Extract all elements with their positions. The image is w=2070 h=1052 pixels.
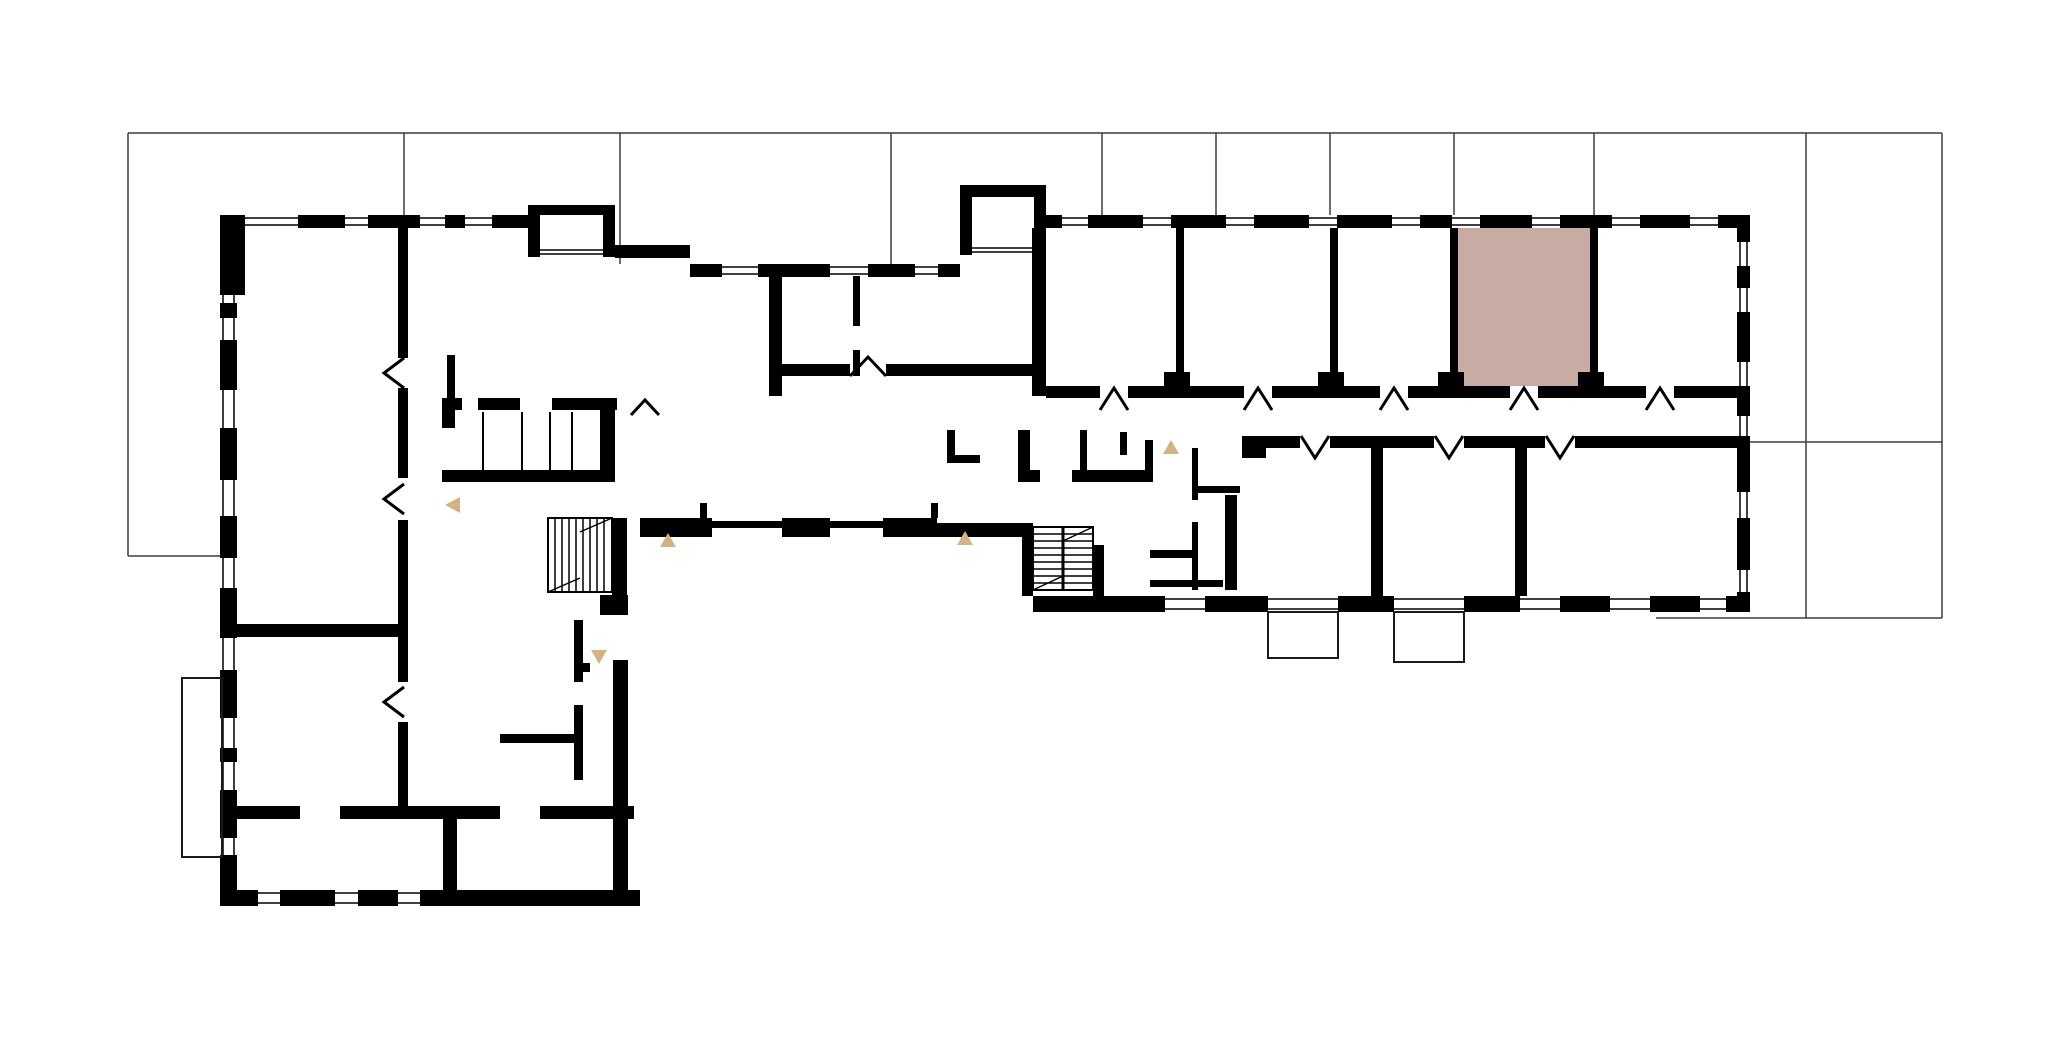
exterior-wall-segment: [1737, 312, 1750, 362]
exterior-wall-segment: [1726, 596, 1750, 612]
wall-segment: [1438, 372, 1464, 386]
wall-segment: [1120, 432, 1127, 455]
exterior-wall-segment: [445, 215, 465, 228]
wall-segment: [574, 620, 583, 682]
balcony-outline: [1394, 612, 1464, 662]
wall-segment: [615, 245, 690, 258]
exterior-wall-segment: [358, 890, 398, 906]
exterior-wall-segment: [938, 264, 960, 277]
door-chevron: [384, 358, 404, 388]
wall-segment: [398, 228, 408, 358]
exterior-wall-segment: [1171, 215, 1226, 228]
wall-segment: [442, 470, 615, 482]
wall-segment: [237, 806, 300, 819]
wall-segment: [237, 624, 404, 637]
selected-unit[interactable]: [1458, 228, 1590, 386]
exterior-wall-segment: [1337, 215, 1392, 228]
wall-segment: [442, 398, 455, 428]
wall-segment: [478, 398, 520, 410]
floor-plan-canvas: [0, 0, 2070, 1052]
door-chevron: [631, 400, 659, 415]
wall-segment: [886, 364, 1032, 376]
wall-segment: [220, 228, 245, 295]
wall-segment: [1034, 185, 1046, 228]
wall-segment: [500, 734, 574, 743]
door-chevron: [1380, 388, 1408, 410]
wall-segment: [528, 205, 615, 215]
door-chevron: [1510, 388, 1538, 410]
wall-segment: [1242, 436, 1266, 458]
wall-segment: [1080, 430, 1087, 470]
wall-segment: [1674, 386, 1750, 398]
floor-plan-page: [0, 0, 2070, 1052]
wall-segment: [340, 806, 500, 819]
wall-segment: [1164, 372, 1190, 386]
exterior-wall-segment: [1254, 215, 1309, 228]
wall-segment: [1128, 386, 1244, 398]
wall-segment: [1371, 443, 1383, 596]
wall-segment: [612, 518, 627, 595]
wall-segment: [398, 722, 408, 812]
wall-segment: [769, 264, 782, 396]
wall-segment: [947, 455, 980, 463]
exterior-wall-segment: [1420, 215, 1452, 228]
wall-segment: [1538, 386, 1646, 398]
wall-segment: [447, 355, 455, 400]
wall-segment: [960, 185, 1046, 197]
wall-segment: [1093, 545, 1104, 596]
wall-segment: [1192, 486, 1240, 493]
exterior-wall-segment: [220, 855, 237, 890]
exterior-wall-segment: [1033, 596, 1165, 612]
wall-segment: [1046, 386, 1100, 398]
wall-segment: [443, 818, 457, 890]
exterior-wall-segment: [280, 890, 335, 906]
wall-segment: [1578, 372, 1604, 386]
wall-segment: [931, 503, 938, 518]
exterior-wall-segment: [220, 890, 258, 906]
wall-segment: [1318, 372, 1344, 386]
wall-segment: [830, 521, 883, 528]
wall-segment: [782, 518, 813, 537]
exterior-wall-segment: [1560, 215, 1612, 228]
balcony-outline: [182, 678, 222, 857]
wall-segment: [1408, 386, 1510, 398]
door-chevron: [1546, 436, 1574, 458]
wall-segment: [883, 518, 937, 537]
wall-segment: [603, 205, 615, 257]
direction-triangle-left: [445, 497, 460, 513]
wall-segment: [693, 518, 712, 537]
exterior-wall-segment: [758, 264, 830, 277]
door-chevron: [384, 484, 404, 514]
exterior-wall-segment: [1737, 518, 1750, 570]
wall-segment: [1225, 495, 1237, 590]
wall-segment: [700, 503, 707, 518]
exterior-wall-segment: [1205, 596, 1268, 612]
wall-segment: [937, 523, 1033, 537]
exterior-wall-segment: [368, 215, 420, 228]
wall-segment: [1150, 550, 1197, 558]
wall-segment: [712, 521, 782, 528]
exterior-wall-segment: [690, 264, 722, 277]
exterior-wall-segment: [220, 215, 245, 228]
exterior-wall-segment: [1737, 215, 1750, 242]
wall-segment: [1464, 436, 1545, 448]
wall-segment: [1145, 440, 1153, 480]
balcony-outline: [1268, 612, 1338, 658]
wall-segment: [398, 388, 408, 478]
wall-segment: [398, 520, 408, 682]
wall-segment: [1575, 436, 1750, 448]
exterior-wall-segment: [298, 215, 345, 228]
wall-segment: [600, 595, 628, 615]
wall-segment: [1176, 228, 1184, 386]
wall-segment: [1330, 228, 1338, 386]
door-chevron: [1301, 436, 1329, 458]
exterior-wall-segment: [1338, 596, 1394, 612]
wall-segment: [1150, 580, 1223, 587]
direction-triangle-up: [1163, 440, 1179, 454]
wall-segment: [1018, 470, 1040, 482]
wall-segment: [600, 398, 615, 482]
exterior-wall-segment: [220, 428, 237, 480]
exterior-wall-segment: [1650, 596, 1700, 612]
wall-segment: [1272, 386, 1380, 398]
wall-segment: [1032, 228, 1046, 396]
wall-segment: [782, 364, 850, 376]
wall-segment: [613, 660, 628, 890]
wall-segment: [574, 705, 583, 780]
wall-segment: [574, 663, 590, 672]
exterior-wall-segment: [1088, 215, 1143, 228]
exterior-wall-segment: [868, 264, 915, 277]
wall-segment: [813, 518, 830, 537]
exterior-wall-segment: [220, 303, 237, 318]
exterior-wall-segment: [220, 516, 237, 558]
exterior-wall-segment: [1464, 596, 1520, 612]
exterior-wall-segment: [420, 890, 640, 906]
exterior-wall-segment: [1737, 266, 1750, 288]
direction-triangle-down: [591, 650, 607, 664]
door-chevron: [1435, 436, 1463, 458]
wall-segment: [1515, 448, 1527, 596]
door-chevron: [1244, 388, 1272, 410]
wall-segment: [853, 276, 860, 326]
staircase: [548, 518, 612, 592]
wall-segment: [640, 518, 693, 537]
exterior-wall-segment: [1560, 596, 1610, 612]
door-chevron: [1100, 388, 1128, 410]
wall-segment: [1022, 527, 1033, 596]
exterior-wall-segment: [220, 588, 237, 638]
wall-segment: [1590, 228, 1598, 386]
door-chevron: [384, 687, 404, 717]
exterior-wall-segment: [1640, 215, 1690, 228]
wall-segment: [1072, 470, 1153, 482]
exterior-wall-segment: [220, 340, 237, 390]
door-chevron: [1646, 388, 1674, 410]
wall-segment: [1450, 228, 1458, 386]
exterior-wall-segment: [1480, 215, 1532, 228]
